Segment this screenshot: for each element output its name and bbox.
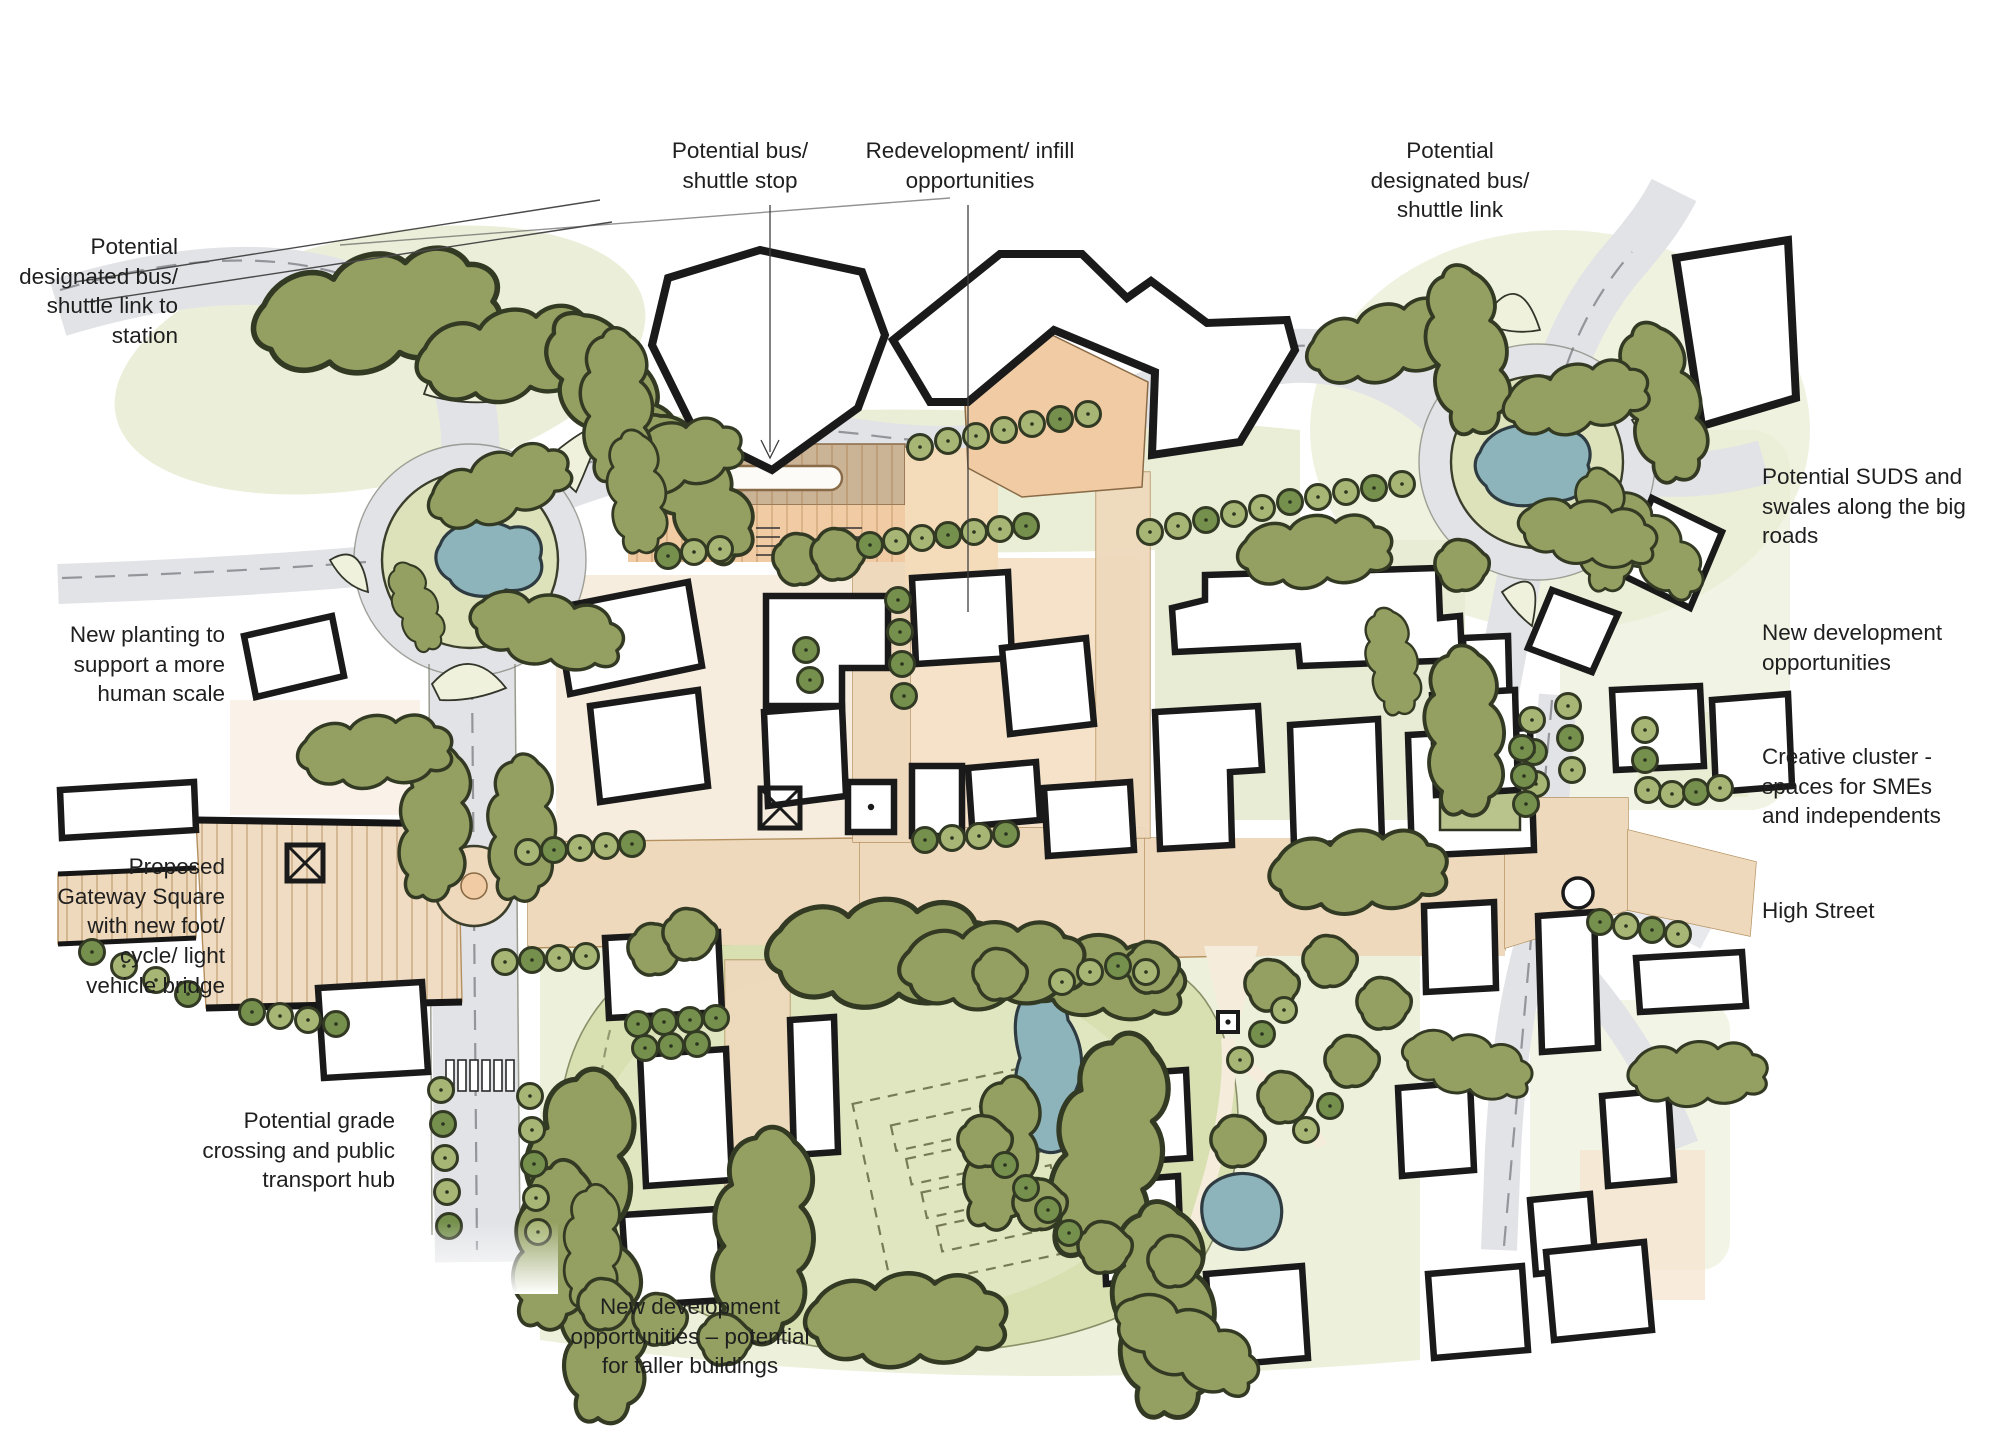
right-roundabout-pond xyxy=(1475,425,1590,506)
suds-pond-2 xyxy=(1202,1173,1282,1249)
masterplan-canvas: Potential designated bus/ shuttle link t… xyxy=(0,0,2000,1435)
label-bus-shuttle-link-to-station: Potential designated bus/ shuttle link t… xyxy=(0,232,178,351)
park-marker xyxy=(1218,1012,1238,1032)
label-redevelopment-infill: Redevelopment/ infill opportunities xyxy=(810,136,1130,195)
label-creative-cluster: Creative cluster - spaces for SMEs and i… xyxy=(1762,742,2000,831)
left-roundabout-pond xyxy=(436,522,542,597)
label-suds-swales: Potential SUDS and swales along the big … xyxy=(1762,462,2000,551)
label-gateway-square: Proposed Gateway Square with new foot/ c… xyxy=(0,852,225,1000)
label-new-development: New development opportunities xyxy=(1762,618,2000,677)
label-new-planting: New planting to support a more human sca… xyxy=(0,620,225,709)
masterplan-map xyxy=(0,0,2000,1435)
label-taller-buildings: New development opportunities – potentia… xyxy=(490,1292,890,1381)
label-grade-crossing: Potential grade crossing and public tran… xyxy=(95,1106,395,1195)
label-high-street: High Street xyxy=(1762,896,2000,926)
road-fade xyxy=(408,1222,558,1294)
label-bus-shuttle-link: Potential designated bus/ shuttle link xyxy=(1290,136,1610,225)
